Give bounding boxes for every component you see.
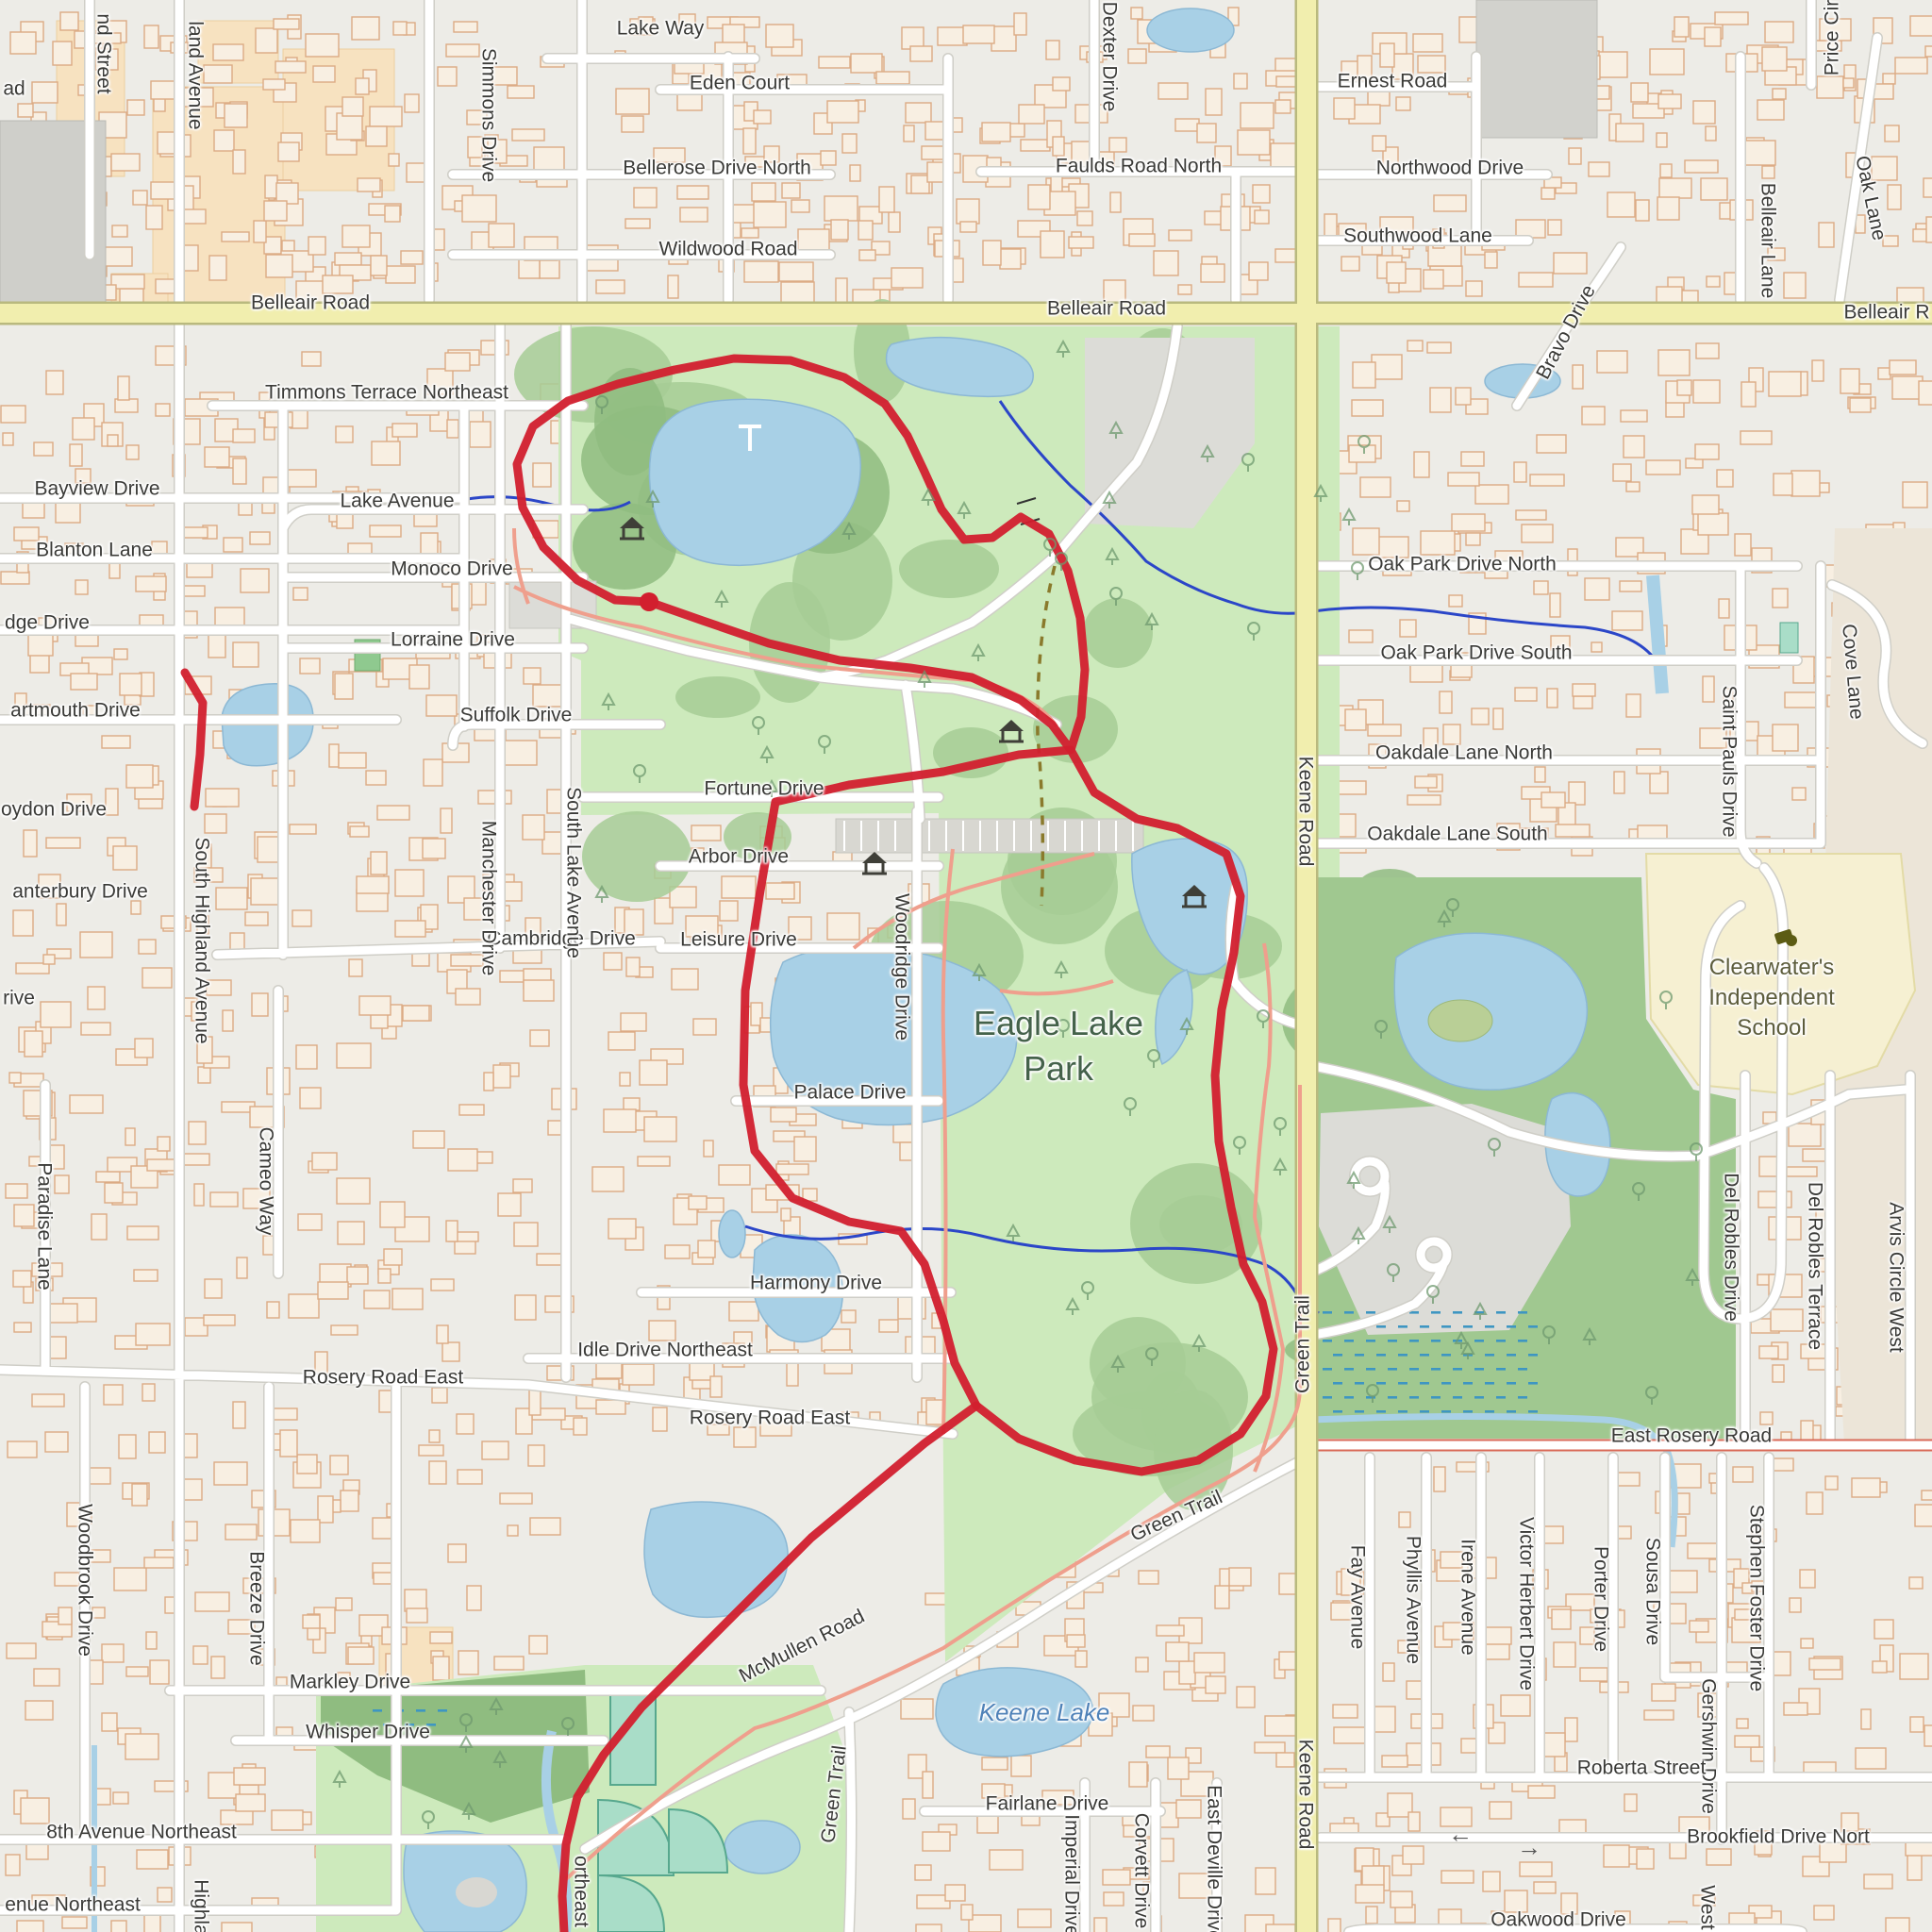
building [686,916,718,937]
building [1353,362,1375,388]
building [1514,462,1526,482]
building [1773,1365,1784,1382]
marsh-dash [1474,1396,1484,1399]
marsh-dash [1344,1396,1354,1399]
building [1014,13,1026,35]
building [754,110,771,124]
building [1169,230,1191,241]
building [222,232,249,241]
building [1607,192,1635,217]
building [347,1267,368,1284]
building [431,1279,454,1291]
building [424,759,442,786]
building [468,137,482,158]
building [392,424,417,437]
building [318,1282,348,1299]
building [1701,178,1727,200]
building [393,22,407,35]
building [1178,285,1191,294]
marsh-dash [1344,1340,1354,1342]
building [1874,1620,1893,1639]
building [1773,724,1798,751]
building [379,1391,392,1412]
building [1637,1849,1654,1869]
building [1674,17,1689,37]
building [459,1105,484,1115]
building [1597,351,1627,373]
marsh-dash [1333,1382,1342,1385]
building [366,126,387,146]
building [1900,1654,1928,1679]
building [1732,1618,1760,1642]
building [198,844,211,868]
scrub-patch [724,812,791,861]
building [1387,262,1406,283]
building [1745,141,1775,165]
building [1382,1756,1407,1767]
building [1759,1346,1778,1358]
building [192,1002,203,1021]
building [6,1184,27,1198]
building [13,910,33,936]
building [1368,724,1401,736]
building [378,1269,391,1283]
marsh-dash [1420,1410,1429,1413]
building [779,262,813,281]
building [385,206,400,222]
building [608,1219,636,1239]
building [1430,388,1451,412]
building [1485,252,1497,268]
building [183,88,213,107]
building [858,221,873,240]
building [1890,360,1916,375]
building [1069,237,1093,248]
building [429,1430,440,1442]
building [1328,1919,1341,1932]
building [1424,728,1438,751]
building [1418,56,1445,73]
building [604,953,622,970]
building [1253,185,1270,203]
keene-green-strip [1317,326,1340,883]
building [1028,185,1050,209]
building [96,1172,120,1182]
building [14,527,39,541]
marsh-dash [1388,1396,1397,1399]
building [215,608,244,627]
building [525,918,541,938]
building [1768,248,1785,260]
building [1760,1412,1773,1424]
marsh-dash [1355,1382,1364,1385]
map-tiles [0,0,1932,1932]
building [850,165,860,181]
marsh-dash [1496,1340,1506,1342]
building [1624,1794,1637,1811]
building [1660,164,1672,177]
building [1852,1478,1880,1497]
building [370,525,401,537]
building [441,808,452,833]
building [137,1850,168,1869]
building [430,1632,452,1643]
building [1580,1668,1607,1681]
building [1466,533,1480,545]
building [1094,1918,1107,1932]
building [644,1117,676,1141]
building [1391,1891,1412,1907]
building [183,527,208,538]
building [1569,782,1585,805]
building [1574,696,1592,708]
building [529,1389,541,1415]
building [206,789,239,807]
building [625,909,643,935]
building [204,65,232,83]
building [1194,1653,1224,1673]
building [991,26,1016,51]
building [1131,8,1142,19]
building [125,1128,135,1145]
marsh-dash [1528,1354,1538,1357]
marsh-dash [1496,1396,1506,1399]
building [113,1792,128,1804]
building [448,1544,466,1562]
building [81,1023,110,1035]
building [1407,341,1423,351]
marsh-dash [1323,1340,1332,1342]
building [821,151,836,165]
building [901,1699,933,1719]
building [1616,124,1643,142]
building [386,266,415,283]
building [504,882,522,901]
building [911,175,929,193]
building [1475,485,1508,504]
building [923,1772,933,1798]
building [358,178,380,192]
building [1104,280,1125,304]
building [640,1060,667,1085]
building [1179,1661,1195,1684]
building [1554,253,1587,274]
building [1735,534,1751,556]
marsh-dash [1507,1382,1516,1385]
building [1215,1586,1229,1608]
building [1376,537,1408,558]
building [1719,599,1729,618]
building [1434,1467,1445,1491]
building [71,674,97,690]
building [1789,1124,1821,1146]
building [313,66,335,82]
scrub-patch [675,676,760,718]
building [1700,728,1726,748]
building [1408,1812,1420,1831]
building [1541,792,1565,808]
building [1537,435,1566,453]
building [18,104,33,117]
building [150,1660,169,1684]
building [1449,595,1462,607]
building [1349,630,1373,642]
building [915,1865,931,1880]
building [1924,178,1932,197]
building [1448,473,1479,486]
building [1399,1512,1410,1527]
building [1909,1577,1923,1589]
building [734,1427,756,1447]
building [1685,160,1718,173]
building [1255,210,1269,224]
marsh-dash [1518,1396,1527,1399]
scrub-patch [582,811,691,902]
building [1910,16,1932,36]
building [827,913,859,940]
building [250,532,270,544]
marsh-dash [1344,1311,1354,1314]
building [57,904,66,925]
building [349,959,362,976]
building [372,441,400,465]
building [1552,1609,1571,1629]
marsh-dash [1323,1368,1332,1371]
building [1175,119,1199,131]
building [592,1167,624,1191]
building [392,1289,423,1309]
building [377,806,409,820]
building [458,1470,482,1484]
marsh-dash [1507,1325,1516,1328]
building [1864,1874,1892,1889]
building [330,1456,348,1474]
building [1626,694,1641,717]
building [1612,611,1642,630]
building [297,1455,317,1474]
marsh-dash [1376,1325,1386,1328]
building [1129,1762,1147,1787]
building [1636,200,1649,221]
building [1424,270,1443,289]
building [46,838,80,848]
building [1658,350,1690,375]
building [1696,343,1719,358]
route-start-dot [640,592,658,611]
building [446,44,479,57]
harmony-lake [644,1502,788,1617]
marsh-dash [1518,1311,1527,1314]
building [1774,1458,1793,1471]
building [1621,410,1647,422]
building [1360,477,1391,497]
building [352,17,379,40]
building [1396,97,1410,110]
building [10,32,36,54]
belleair-pond [1147,8,1234,52]
building [1413,34,1442,52]
building [102,1644,124,1662]
building [634,188,657,208]
building [1735,1736,1759,1747]
building [432,1388,447,1403]
building [1372,355,1402,379]
building [142,968,172,988]
building [113,846,137,870]
building [1334,98,1355,119]
building [841,1310,856,1323]
building [1801,1639,1813,1648]
building [957,199,979,224]
building [574,1418,587,1435]
map-canvas[interactable]: Lake WayEden CourtBellerose Drive NorthW… [0,0,1932,1932]
marsh-dash [438,1709,447,1712]
building [524,668,541,684]
marsh-dash [1398,1382,1407,1385]
marsh-dash [1420,1354,1429,1357]
building [1791,471,1820,496]
building [1427,342,1451,353]
marsh-dash [426,1724,436,1726]
building [1677,380,1691,395]
building [1520,1862,1552,1876]
building [451,955,483,966]
building [108,435,118,446]
building [115,399,138,412]
building [1773,89,1786,99]
building [251,878,279,905]
building [106,789,118,815]
building [224,538,242,552]
building [827,101,858,123]
building [55,1175,69,1193]
building [23,503,44,518]
building [73,418,94,440]
building [680,208,708,222]
building [1166,1642,1189,1661]
building [906,103,931,123]
scrub-patch [1083,598,1153,668]
building [1888,185,1901,209]
building [144,1557,174,1568]
building [139,940,156,954]
building [1530,475,1564,486]
building [1693,101,1715,124]
marsh-dash [1518,1368,1527,1371]
building [649,1321,675,1341]
marsh-dash [1420,1382,1429,1385]
building [1466,281,1482,296]
building [1841,1813,1858,1831]
building [370,107,402,126]
building [1616,1473,1640,1486]
building [210,1192,238,1207]
building [205,1279,222,1298]
marsh-dash [1441,1354,1451,1357]
building [1819,223,1834,247]
building [158,1137,170,1151]
building [1046,41,1059,59]
building [102,1713,117,1731]
building [32,1394,64,1407]
building [308,237,325,255]
building [927,162,944,182]
building [798,229,829,251]
building [211,1657,225,1678]
building [264,237,281,254]
building [679,14,695,27]
building [1197,124,1216,142]
building [960,222,976,232]
building [1158,83,1188,99]
building [280,1430,297,1457]
building [1737,1719,1748,1728]
building [1883,74,1895,84]
building [1585,578,1609,600]
building [1110,192,1121,212]
building [25,1701,53,1720]
building [1139,1571,1158,1584]
building [401,251,423,264]
building [135,1039,153,1058]
building [1769,372,1801,396]
building [1573,684,1595,696]
building [1569,148,1581,164]
building [1773,589,1788,608]
building [515,1295,536,1320]
building [524,980,554,1001]
building [514,1223,538,1246]
building [216,888,247,909]
building [488,140,507,163]
building [265,175,277,198]
building [1620,581,1641,591]
building [254,221,266,242]
building [1276,1753,1294,1767]
building [1483,1872,1500,1891]
building [1357,56,1372,81]
building [982,1784,1005,1798]
building [34,1669,59,1686]
building [1400,620,1416,637]
building [437,1325,448,1343]
building [241,569,269,592]
building [766,883,794,899]
building [62,1917,87,1928]
building [668,275,678,298]
building [1490,1802,1511,1819]
building [114,649,127,659]
building [371,852,387,874]
building [1414,452,1429,477]
building [1229,1568,1251,1586]
building [851,54,882,73]
building [1443,1623,1474,1640]
building [405,94,419,112]
building [1885,125,1899,142]
marsh-dash [1431,1396,1441,1399]
building [794,1137,816,1161]
building [489,224,514,247]
building [1580,1627,1594,1644]
building [9,1073,21,1083]
building [1041,231,1064,258]
building [1515,688,1537,701]
building [1925,46,1932,57]
building [1878,368,1890,379]
building [508,1525,518,1536]
building [691,825,721,841]
